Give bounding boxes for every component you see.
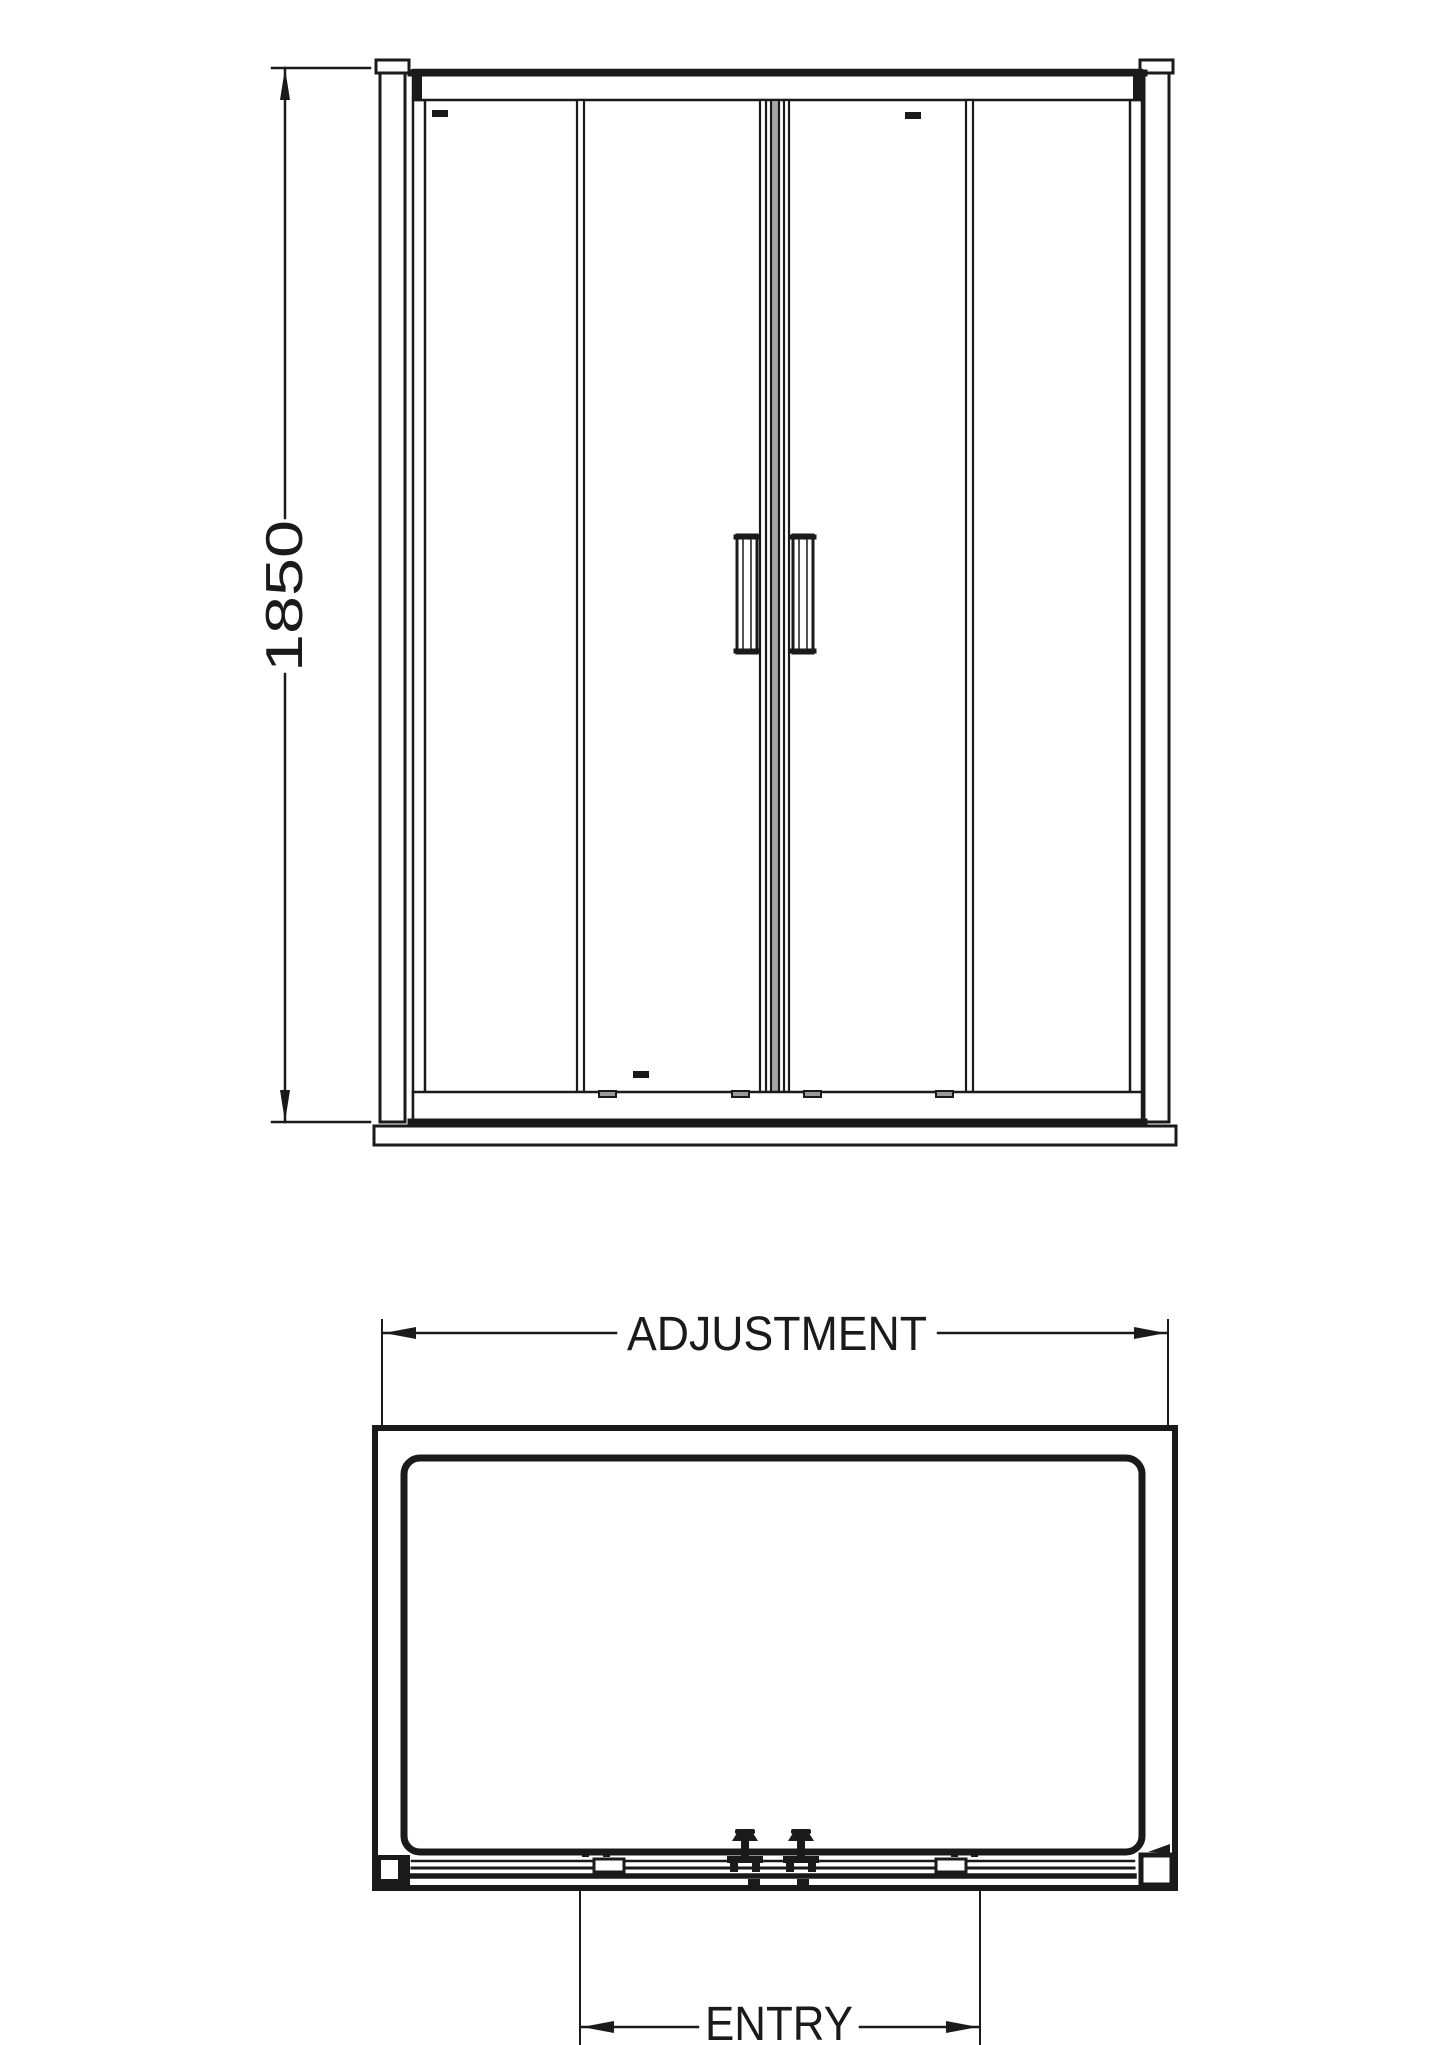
left-profile-cap: [376, 60, 409, 73]
shower-tray: [374, 1126, 1176, 1145]
entry-dimension-label: ENTRY: [705, 1998, 853, 2045]
buffer-stop-top-right: [905, 112, 921, 119]
right-profile-post: [1144, 73, 1169, 1122]
top-rail: [411, 70, 1144, 100]
arrowhead-up-icon: [280, 68, 290, 100]
center-meeting-stiles: [760, 100, 789, 1092]
frame-stile-right: [1130, 100, 1142, 1122]
plan-corner-block-left: [377, 1855, 410, 1885]
shower-door-drawing: 1850: [0, 0, 1445, 2045]
door-handle-right: [792, 535, 814, 653]
corner-block-inset: [381, 1860, 398, 1879]
guide-tick: [971, 1849, 978, 1857]
door-handle-left: [736, 535, 758, 653]
sliding-door-left-stile: [760, 100, 766, 1092]
fixed-panel-left-edge: [577, 100, 584, 1092]
guide-block: [936, 1859, 966, 1872]
right-wall-profile: [1140, 60, 1173, 1122]
left-wall-profile: [376, 60, 409, 1122]
guide-block: [594, 1859, 624, 1872]
arrowhead-right-icon: [1134, 1327, 1166, 1339]
bottom-rail-body: [413, 1092, 1142, 1122]
arrowhead-left-icon: [384, 1327, 416, 1339]
entry-dimension: ENTRY: [580, 1892, 980, 2045]
frame-stile-left: [413, 100, 425, 1122]
roller-guide: [804, 1091, 821, 1097]
height-dimension: 1850: [256, 68, 370, 1122]
buffer-stop-bottom: [633, 1071, 649, 1078]
top-rail-end-right: [1133, 70, 1142, 100]
roller-guide: [732, 1091, 749, 1097]
knob-foot: [730, 1863, 738, 1872]
knob-stem: [741, 1841, 749, 1857]
center-track-mark: [797, 1879, 809, 1885]
height-dimension-label: 1850: [256, 520, 314, 672]
top-rail-end-left: [413, 70, 422, 100]
arrowhead-right-icon: [946, 2021, 978, 2033]
roller-guide: [599, 1091, 616, 1097]
center-track-mark: [748, 1879, 760, 1885]
handle-body: [793, 535, 813, 653]
center-overlap-stile: [771, 100, 779, 1092]
knob-base: [783, 1856, 819, 1863]
adjustment-dimension: ADJUSTMENT: [382, 1308, 1168, 1428]
roller-guide: [936, 1091, 953, 1097]
knob-base: [727, 1856, 763, 1863]
fixed-panel-right-edge: [966, 100, 973, 1092]
front-elevation-view: 1850: [256, 60, 1176, 1145]
technical-drawing-page: 1850: [0, 0, 1445, 2045]
knob-foot: [752, 1863, 760, 1872]
guide-tick: [951, 1849, 958, 1857]
arrowhead-down-icon: [280, 1090, 290, 1122]
knob-stem: [797, 1841, 805, 1857]
corner-block-body: [1141, 1855, 1172, 1885]
guide-tick: [582, 1849, 589, 1857]
knob-foot: [786, 1863, 794, 1872]
adjustment-dimension-label: ADJUSTMENT: [627, 1308, 927, 1361]
buffer-stop-top-left: [432, 110, 448, 117]
guide-tick: [603, 1849, 610, 1857]
plan-glass-outline: [404, 1458, 1142, 1852]
bottom-rail: [411, 1092, 1144, 1122]
knob-foot: [808, 1863, 816, 1872]
arrowhead-left-icon: [582, 2021, 614, 2033]
sliding-door-right-stile: [784, 100, 789, 1092]
handle-body: [737, 535, 757, 653]
plan-view: ADJUSTMENT: [375, 1308, 1175, 2045]
left-profile-post: [380, 73, 405, 1122]
